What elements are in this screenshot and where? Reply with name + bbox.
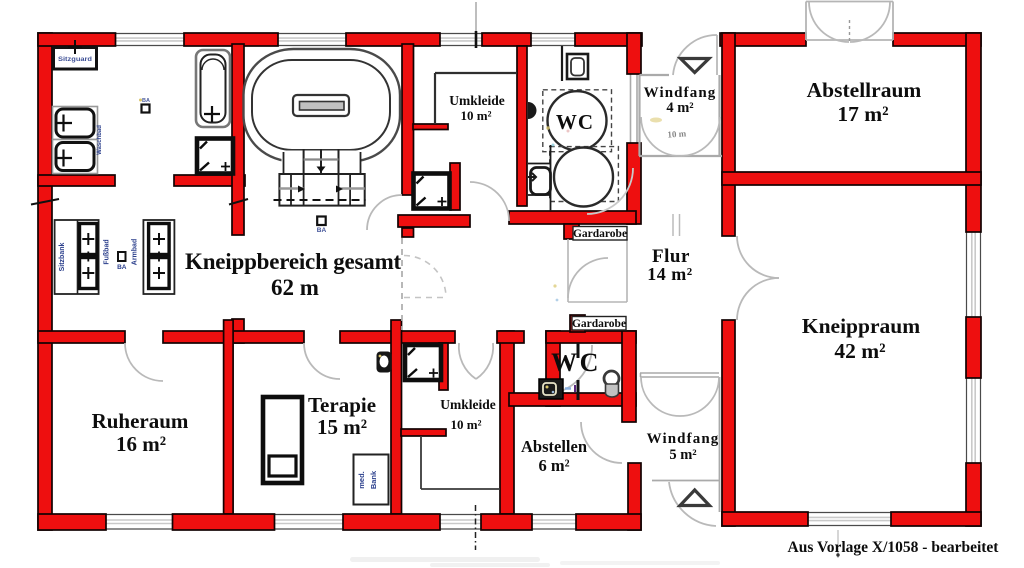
svg-text:Windfang: Windfang: [644, 85, 717, 101]
svg-text:Windfang: Windfang: [647, 431, 720, 447]
svg-text:10 m²: 10 m²: [451, 417, 482, 432]
svg-text:Gardarobe: Gardarobe: [573, 228, 627, 240]
svg-text:Gardarobe: Gardarobe: [572, 318, 626, 330]
svg-text:Fußbad: Fußbad: [104, 239, 111, 264]
svg-text:42 m²: 42 m²: [834, 339, 885, 363]
svg-text:Armbad: Armbad: [132, 239, 139, 265]
svg-text:BA: BA: [142, 98, 150, 104]
svg-text:Abstellraum: Abstellraum: [807, 78, 922, 102]
svg-text:14 m²: 14 m²: [647, 264, 692, 284]
svg-text:4 m²: 4 m²: [666, 100, 693, 116]
svg-text:WC: WC: [551, 348, 601, 377]
svg-text:Bank: Bank: [369, 470, 378, 489]
svg-text:BA: BA: [317, 227, 327, 234]
svg-text:17 m²: 17 m²: [837, 102, 888, 126]
svg-text:Kneippraum: Kneippraum: [802, 314, 920, 338]
svg-text:6 m²: 6 m²: [538, 456, 569, 475]
svg-text:5 m²: 5 m²: [669, 447, 696, 463]
svg-text:10 m: 10 m: [667, 128, 687, 139]
svg-text:WC: WC: [556, 110, 594, 134]
svg-text:BA: BA: [117, 264, 127, 271]
svg-text:15 m²: 15 m²: [317, 415, 367, 439]
svg-text:Waschbad: Waschbad: [97, 125, 103, 155]
svg-text:Sitzguard: Sitzguard: [58, 56, 92, 63]
svg-text:Kneippbereich gesamt: Kneippbereich gesamt: [185, 249, 402, 274]
svg-text:62 m: 62 m: [271, 275, 319, 300]
svg-text:Umkleide: Umkleide: [449, 93, 505, 108]
svg-text:Umkleide: Umkleide: [440, 397, 496, 412]
svg-text:Abstellen: Abstellen: [521, 437, 587, 456]
svg-text:16 m²: 16 m²: [116, 432, 166, 456]
svg-text:Ruheraum: Ruheraum: [92, 409, 189, 433]
svg-text:med.: med.: [357, 471, 366, 489]
svg-text:Sitzbank: Sitzbank: [59, 243, 66, 272]
svg-text:10 m²: 10 m²: [461, 108, 492, 123]
svg-text:Terapie: Terapie: [308, 393, 376, 417]
svg-text:Aus Vorlage X/1058 - bearbeite: Aus Vorlage X/1058 - bearbeitet: [788, 539, 1000, 556]
